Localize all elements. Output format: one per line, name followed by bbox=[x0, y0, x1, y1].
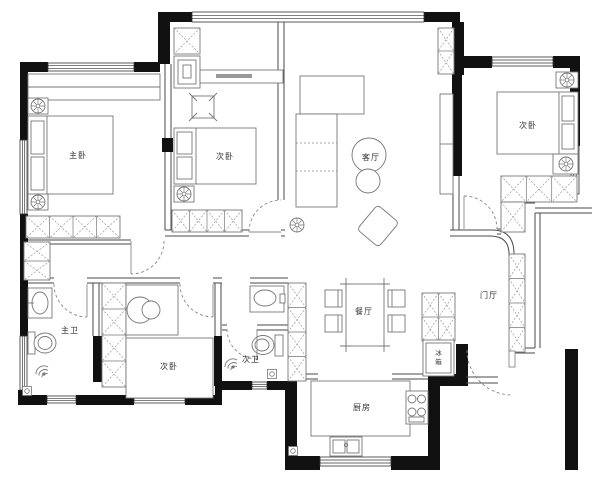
room-label-foyer: 门厅 bbox=[480, 290, 498, 300]
tv-console bbox=[440, 94, 453, 194]
room-label-bedroom-right: 次卧 bbox=[519, 120, 537, 130]
foyer-cabinet-corner bbox=[501, 202, 525, 232]
room-label-living: 客厅 bbox=[362, 152, 380, 162]
lamp-icon bbox=[177, 187, 191, 201]
window-top-main bbox=[192, 12, 424, 22]
toilet bbox=[28, 332, 56, 354]
room-label-kitchen: 厨房 bbox=[353, 402, 371, 412]
floor-drain-icon bbox=[23, 387, 32, 396]
room-label-bedroom-top: 次卧 bbox=[216, 151, 234, 161]
door-master-suite bbox=[131, 241, 164, 274]
desk bbox=[126, 285, 178, 335]
window-master-top bbox=[48, 63, 134, 71]
bedroom-bottom-furniture bbox=[126, 285, 213, 398]
room-label-master-bedroom: 主卧 bbox=[69, 150, 87, 160]
floor-drain-icon bbox=[268, 370, 277, 379]
bed-top bbox=[174, 128, 256, 184]
bedroom-top-cabinet bbox=[174, 28, 200, 54]
coffee-table bbox=[352, 138, 386, 193]
floor-drain-icon bbox=[289, 447, 298, 456]
master-wardrobe bbox=[26, 216, 120, 238]
kitchen-sink bbox=[330, 437, 362, 456]
living-top-cabinet bbox=[438, 28, 454, 74]
ceiling-lamp-icon bbox=[290, 218, 304, 232]
window-left-lower bbox=[20, 336, 27, 390]
bathroom-sink bbox=[28, 288, 52, 318]
room-label-bedroom-bottom: 次卧 bbox=[160, 361, 178, 371]
door-master-bath bbox=[54, 284, 87, 317]
stove bbox=[406, 391, 428, 424]
fridge-label-bottom: 箱 bbox=[435, 357, 442, 366]
window-bottom-left-1 bbox=[47, 396, 76, 403]
door-bedroom-right bbox=[464, 196, 497, 229]
desk bbox=[200, 70, 283, 83]
floor-plan: 冰 箱 bbox=[0, 0, 600, 480]
dining-hutch bbox=[422, 293, 455, 341]
lamp-icon bbox=[559, 157, 573, 171]
door-bedroom-top bbox=[249, 200, 281, 232]
room-label-dining: 餐厅 bbox=[355, 307, 373, 316]
washing-machine bbox=[174, 56, 200, 88]
door-entrance bbox=[467, 350, 515, 395]
bedroom-right-furniture bbox=[497, 72, 578, 174]
side-table bbox=[189, 93, 217, 121]
room-label-master-bath: 主卫 bbox=[61, 325, 79, 335]
floor-plan-drawing: 冰 箱 bbox=[0, 0, 600, 480]
window-left-upper bbox=[20, 140, 27, 214]
bath2-side-cabinet bbox=[288, 283, 306, 381]
shower-icon bbox=[34, 363, 51, 378]
lamp-icon bbox=[560, 73, 574, 87]
door-bedroom-bottom bbox=[180, 284, 213, 317]
master-bedroom-furniture bbox=[28, 74, 160, 210]
foyer-cabinet-run bbox=[509, 254, 525, 352]
bedroom-bottom-wardrobe bbox=[102, 283, 126, 387]
bedroom-top-wardrobe bbox=[172, 210, 242, 232]
corridor-closet bbox=[24, 242, 50, 280]
fridge-label-top: 冰 bbox=[435, 348, 442, 357]
kitchen-fixtures bbox=[289, 381, 429, 456]
bedroom-right-wardrobe bbox=[501, 176, 577, 202]
lounge-chair bbox=[357, 205, 399, 248]
shower-icon bbox=[223, 356, 240, 371]
lamp-icon bbox=[31, 195, 45, 209]
window-bedroom-right-top bbox=[492, 57, 553, 66]
bathroom-sink bbox=[250, 286, 285, 312]
refrigerator: 冰 箱 bbox=[423, 340, 454, 376]
bedroom-top-furniture bbox=[174, 56, 283, 202]
sofa bbox=[296, 76, 364, 207]
bed-right bbox=[497, 92, 578, 154]
window-kitchen bbox=[320, 457, 391, 466]
second-bathroom-fixtures bbox=[223, 286, 285, 379]
window-bath2 bbox=[252, 382, 267, 389]
lamp-icon bbox=[31, 99, 45, 113]
room-label-bath2: 次卫 bbox=[242, 354, 260, 364]
